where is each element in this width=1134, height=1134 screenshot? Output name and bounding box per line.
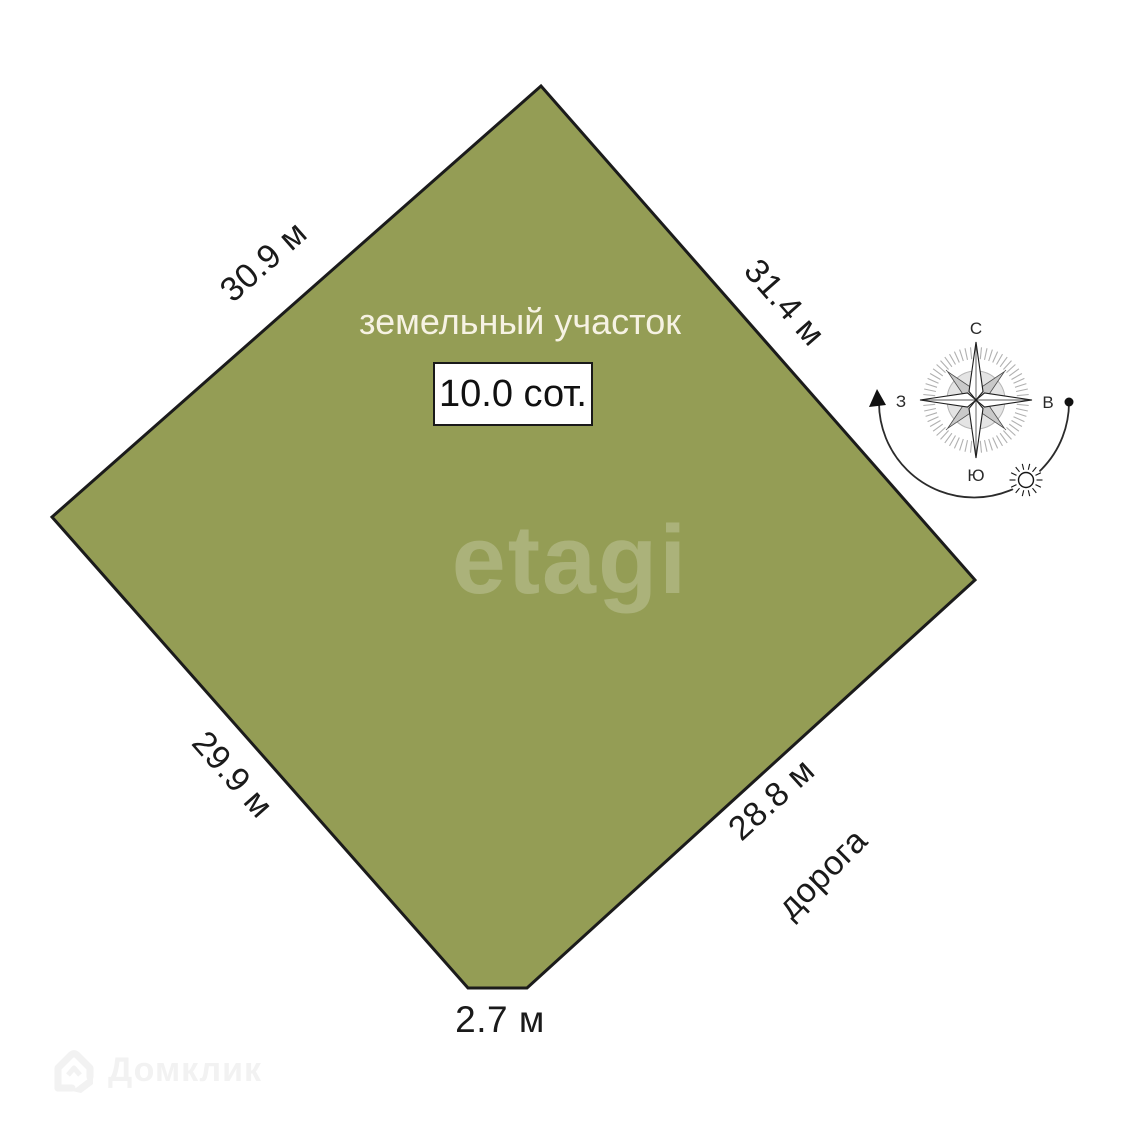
compass-cardinal-points [920,342,1032,458]
plot-area-box: 10.0 сот. [433,362,593,426]
compass-label-west: З [896,392,906,411]
etagi-watermark: etagi [452,504,688,616]
domclick-watermark-text: Домклик [108,1051,262,1090]
compass-label-south: Ю [967,466,984,485]
domclick-watermark: Домклик [48,1044,262,1096]
compass-label-east: В [1042,393,1053,412]
sun-path-start-dot [1065,398,1074,407]
compass-rose: С Ю З В [850,290,1100,520]
plot-area-value: 10.0 сот. [439,373,587,416]
house-icon [48,1044,100,1096]
sun-path-arrowhead [869,389,886,407]
measurement-bottom-side: 2.7 м [455,999,545,1041]
sun-icon [1019,473,1034,488]
compass-label-north: С [970,319,982,338]
plot-title: земельный участок [359,301,681,343]
land-plot-diagram: etagi земельный участок 10.0 сот. 30.9 м… [0,0,1134,1134]
